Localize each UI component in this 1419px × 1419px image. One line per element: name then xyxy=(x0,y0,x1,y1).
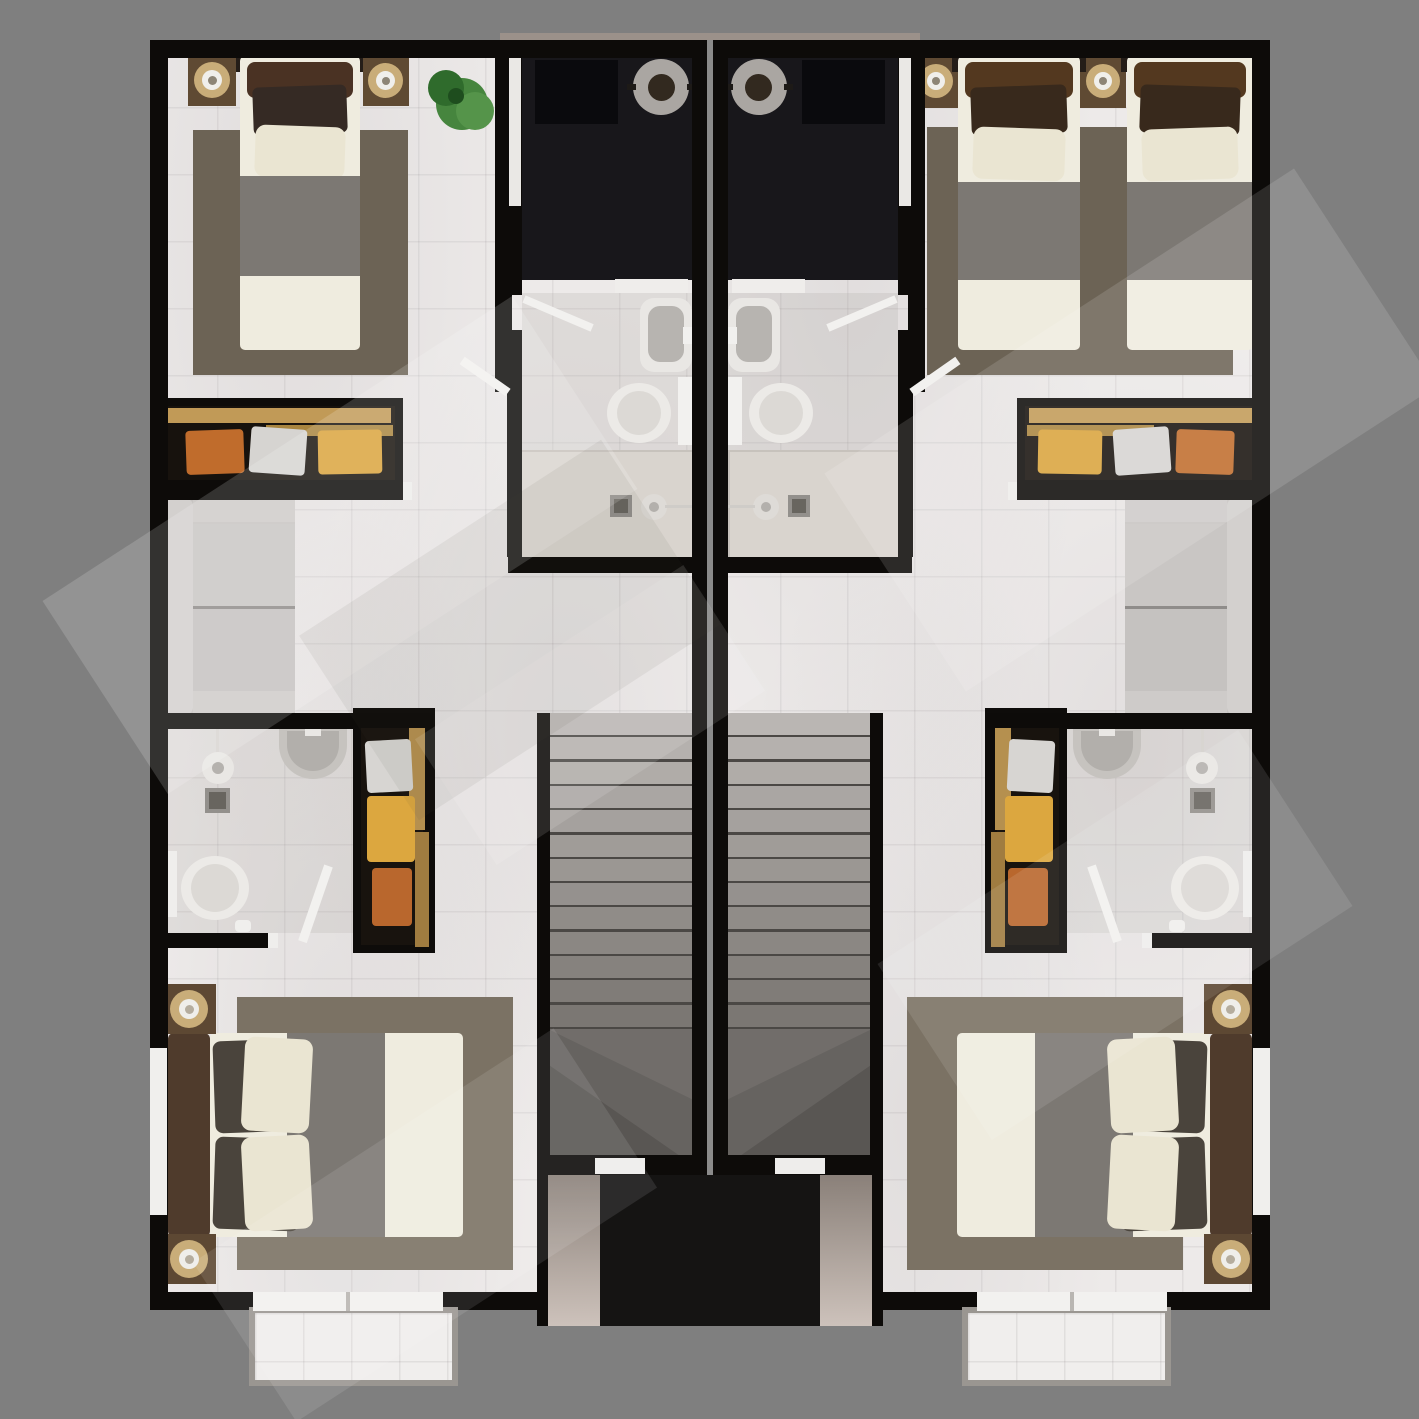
lamp-twin-mid-dot xyxy=(1099,77,1107,85)
staircase-tread-12-right-unit xyxy=(727,980,872,1002)
staircase-tread-13-right-unit xyxy=(727,1005,872,1027)
lamp-b2-bottom-dot-right-unit xyxy=(1226,1255,1235,1264)
balcony-door-divider-right-unit xyxy=(1070,1292,1074,1311)
twin-bed-a-blanket xyxy=(958,182,1080,280)
wall-staircase-right-unit xyxy=(870,713,883,1165)
sofa-backrest-right-unit xyxy=(1227,498,1255,715)
toilet-seat-top xyxy=(617,391,661,435)
shower-arm-top xyxy=(665,505,692,508)
round-appliance-knob-left-right-unit xyxy=(784,84,793,90)
wardrobe-clothes-orange xyxy=(185,429,245,475)
twin-bed-b-pillow-white xyxy=(1141,126,1239,181)
bedroom2-window-right-unit xyxy=(1253,1048,1270,1215)
lamp-b1-right-dot xyxy=(382,77,390,85)
bathroom2-door-jamb xyxy=(268,933,278,948)
duplex-floor-plan-render xyxy=(0,0,1419,1419)
bed1-blanket xyxy=(240,176,360,276)
lamp-b2-top-dot xyxy=(185,1005,194,1014)
shower-drain-grill-top-right-unit xyxy=(792,499,806,513)
staircase-tread-8-right-unit xyxy=(727,883,872,905)
lamp-twin-left-dot xyxy=(932,77,940,85)
utility-counter xyxy=(535,60,618,124)
utility-sliding-door-right-unit xyxy=(899,58,911,206)
bedroom2-window xyxy=(150,1048,167,1215)
staircase-tread-9-right-unit xyxy=(727,907,872,929)
staircase-tread-11 xyxy=(548,956,693,978)
staircase-tread-6 xyxy=(548,835,693,857)
sink-bowl-top xyxy=(648,306,684,362)
sink-bowl-top-right-unit xyxy=(736,306,772,362)
towel-yellow xyxy=(367,796,415,862)
staircase-tread-7-right-unit xyxy=(727,859,872,881)
staircase-tread-10 xyxy=(548,932,693,954)
shower-head-dot-top xyxy=(649,502,659,512)
shower-head-dot-top-right-unit xyxy=(761,502,771,512)
staircase-tread-8 xyxy=(548,883,693,905)
staircase-tread-4-right-unit xyxy=(727,786,872,808)
sink-faucet-top xyxy=(683,327,692,344)
balcony-floor-right-unit xyxy=(968,1313,1165,1380)
utility-sliding-door xyxy=(509,58,521,206)
wall-top-right-unit xyxy=(713,40,1270,58)
bed2-pillow-cream-b-right-unit xyxy=(1107,1134,1180,1231)
shower-arm-top-right-unit xyxy=(728,505,755,508)
unit-entry-threshold-right-unit xyxy=(775,1158,825,1174)
staircase-tread-12 xyxy=(548,980,693,1002)
potted-plant-center xyxy=(448,88,464,104)
lamp-b1-left-dot xyxy=(208,76,217,85)
towel-white-right-unit xyxy=(1007,739,1056,793)
round-appliance-bowl-right-unit xyxy=(745,74,772,101)
staircase-tread-2-right-unit xyxy=(727,737,872,759)
toilet2-seat xyxy=(191,864,239,912)
wall-top xyxy=(150,40,707,58)
towel-yellow-right-unit xyxy=(1005,796,1053,862)
toilet2-paper-roll xyxy=(235,920,251,932)
round-appliance-knob-left xyxy=(627,84,636,90)
bed2-headboard-right-unit xyxy=(1210,1033,1252,1237)
wall-porch-edge-right-unit xyxy=(872,1165,883,1326)
lamp-b2-top-dot-right-unit xyxy=(1226,1005,1235,1014)
staircase-tread-1-right-unit xyxy=(727,713,872,735)
sofa-seat-b-right-unit xyxy=(1125,609,1227,691)
staircase-tread-3-right-unit xyxy=(727,762,872,784)
round-appliance-bowl xyxy=(648,74,675,101)
staircase-tread-11-right-unit xyxy=(727,956,872,978)
staircase-tread-5-right-unit xyxy=(727,810,872,832)
sofa-armrest-bottom-right-unit xyxy=(1125,691,1227,715)
porch-side-strip-right-unit xyxy=(820,1175,872,1326)
staircase-tread-10-right-unit xyxy=(727,932,872,954)
toilet-tank-top xyxy=(678,377,692,445)
towel-orange xyxy=(372,868,412,926)
bathroom-top-threshold-right-unit xyxy=(732,279,805,293)
staircase-tread-7 xyxy=(548,859,693,881)
toilet-seat-top-right-unit xyxy=(759,391,803,435)
twin-bed-a-pillow-white xyxy=(972,126,1066,181)
staircase-tread-6-right-unit xyxy=(727,835,872,857)
toilet-tank-top-right-unit xyxy=(728,377,742,445)
wall-bathroom2-bottom xyxy=(150,933,268,948)
sink-faucet-top-right-unit xyxy=(728,327,737,344)
bed1-pillow-white xyxy=(254,124,346,179)
bathroom-top-threshold xyxy=(615,279,688,293)
shower2-drain-grill xyxy=(209,792,226,809)
wall-bathroom2-top-right-unit xyxy=(1065,715,1270,729)
bed2-pillow-cream-a xyxy=(241,1036,314,1133)
bed2-headboard xyxy=(168,1033,210,1237)
staircase-tread-13 xyxy=(548,1005,693,1027)
utility-counter-right-unit xyxy=(802,60,885,124)
linen-closet-rail-b xyxy=(415,832,429,947)
staircase-tread-9 xyxy=(548,907,693,929)
